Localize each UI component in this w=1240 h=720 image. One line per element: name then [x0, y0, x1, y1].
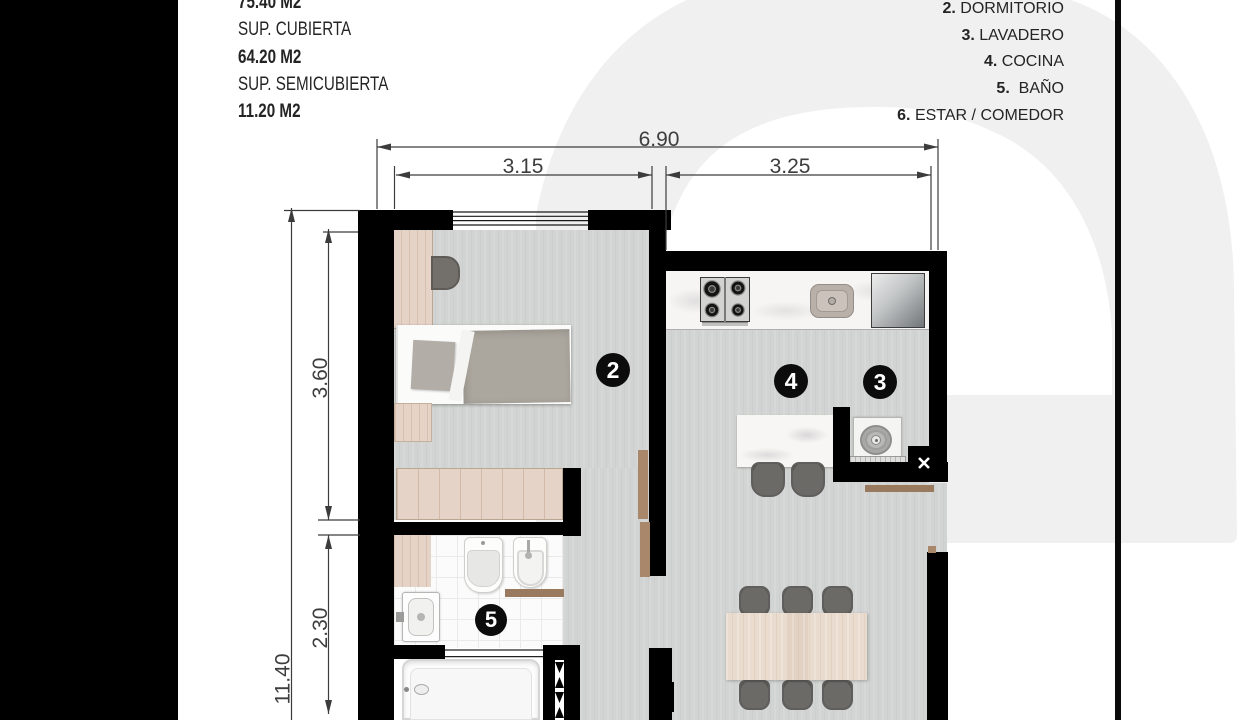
svg-text:3.60: 3.60: [309, 358, 332, 399]
svg-text:11.40: 11.40: [272, 654, 295, 705]
svg-text:6.90: 6.90: [639, 128, 680, 151]
svg-text:3.25: 3.25: [770, 155, 811, 178]
svg-text:2.30: 2.30: [309, 608, 332, 649]
svg-text:3.15: 3.15: [503, 155, 544, 178]
